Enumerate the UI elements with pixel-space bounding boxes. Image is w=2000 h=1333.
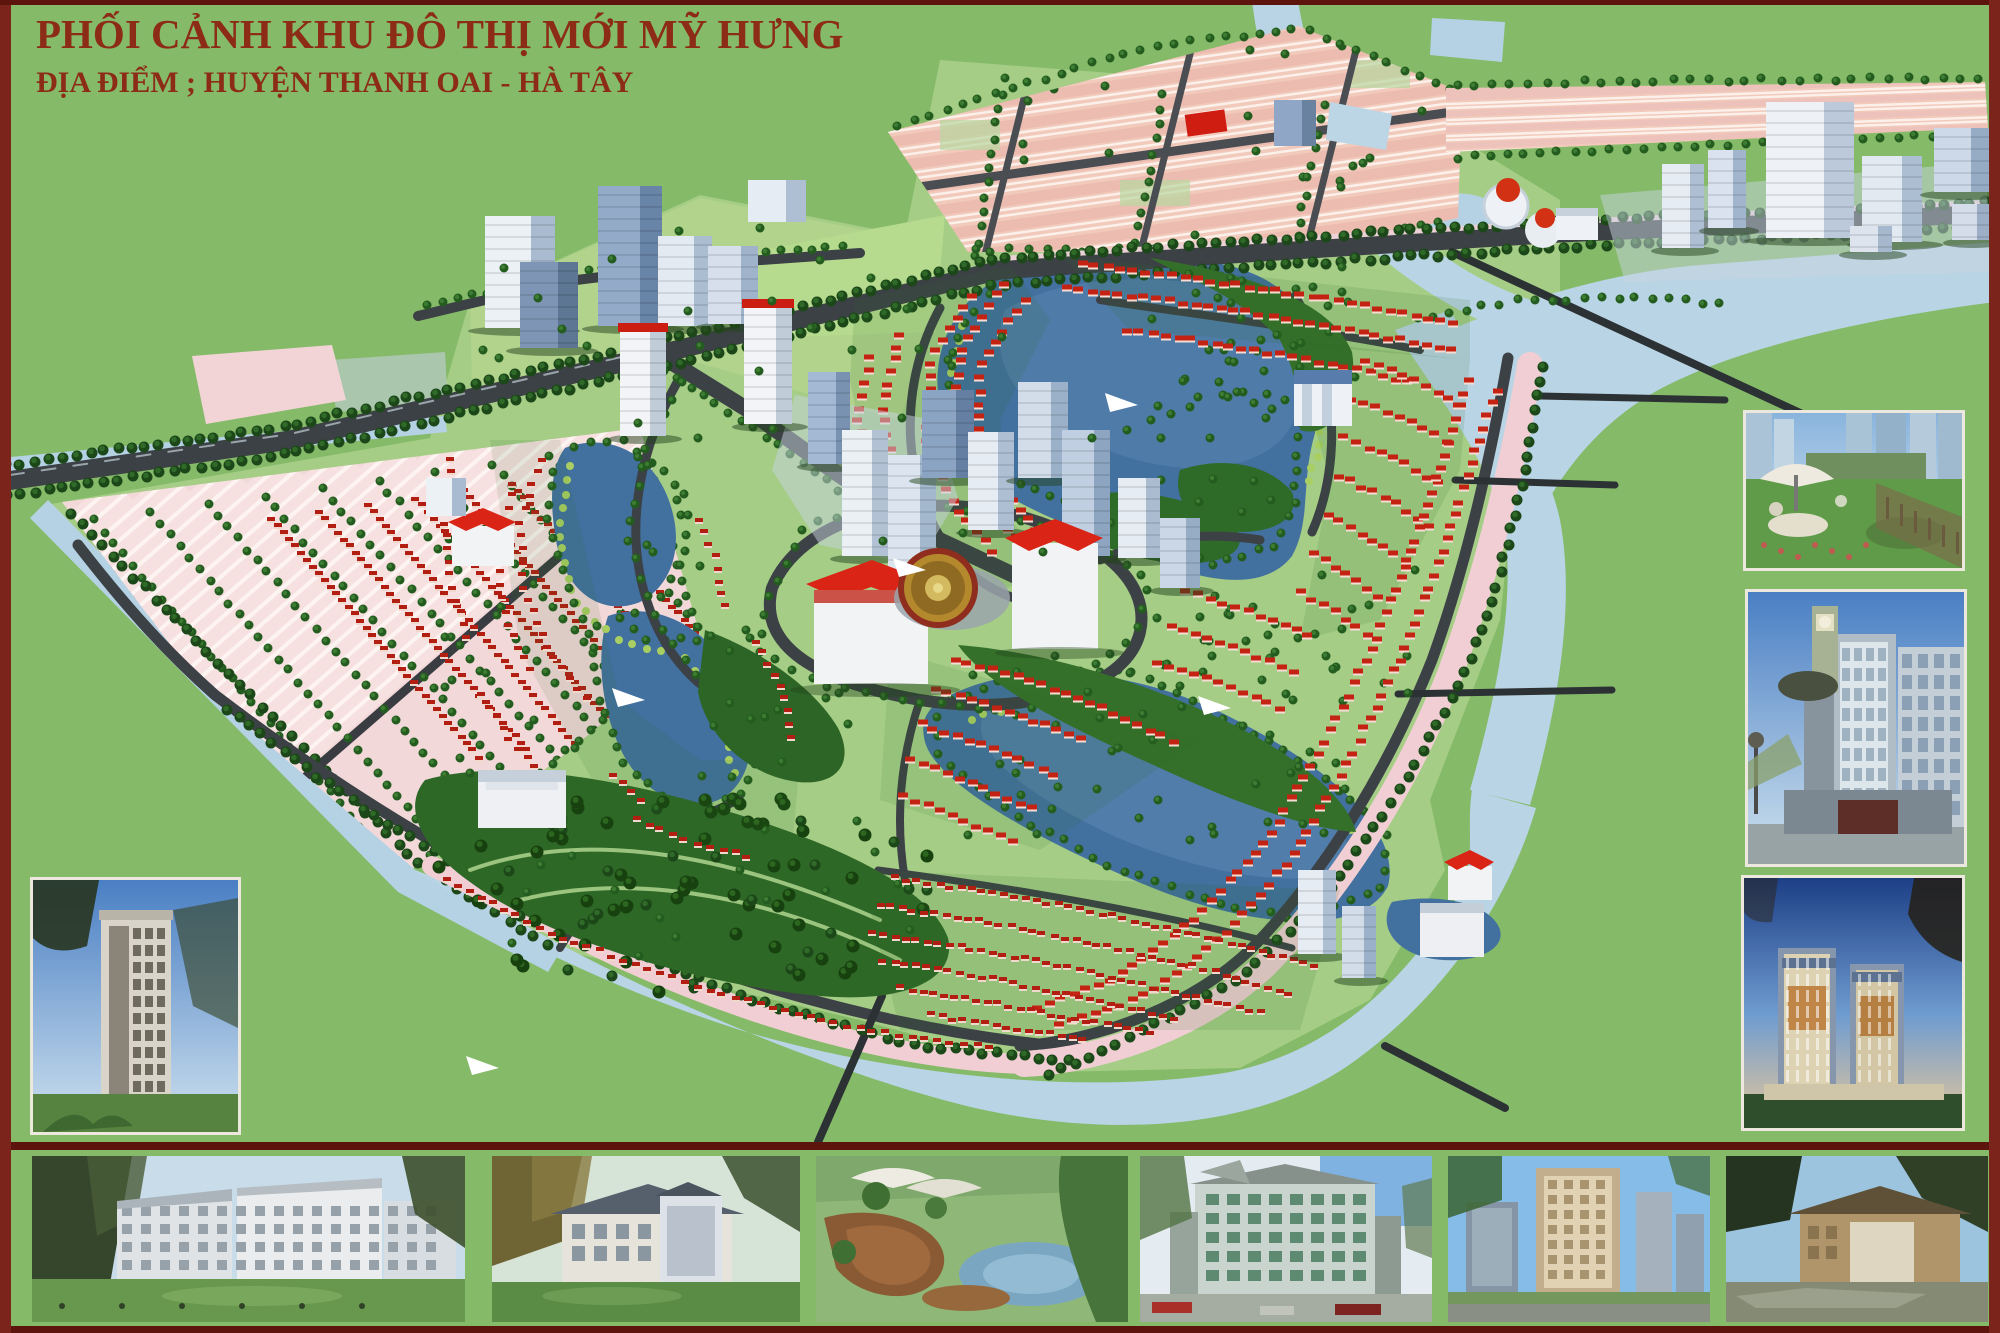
svg-text:PHỐI CẢNH KHU ĐÔ THỊ MỚI MỸ HƯ: PHỐI CẢNH KHU ĐÔ THỊ MỚI MỸ HƯNG — [36, 11, 843, 57]
svg-text:ĐỊA ĐIỂM ; HUYỆN THANH OAI - H: ĐỊA ĐIỂM ; HUYỆN THANH OAI - HÀ TÂY — [36, 66, 634, 99]
